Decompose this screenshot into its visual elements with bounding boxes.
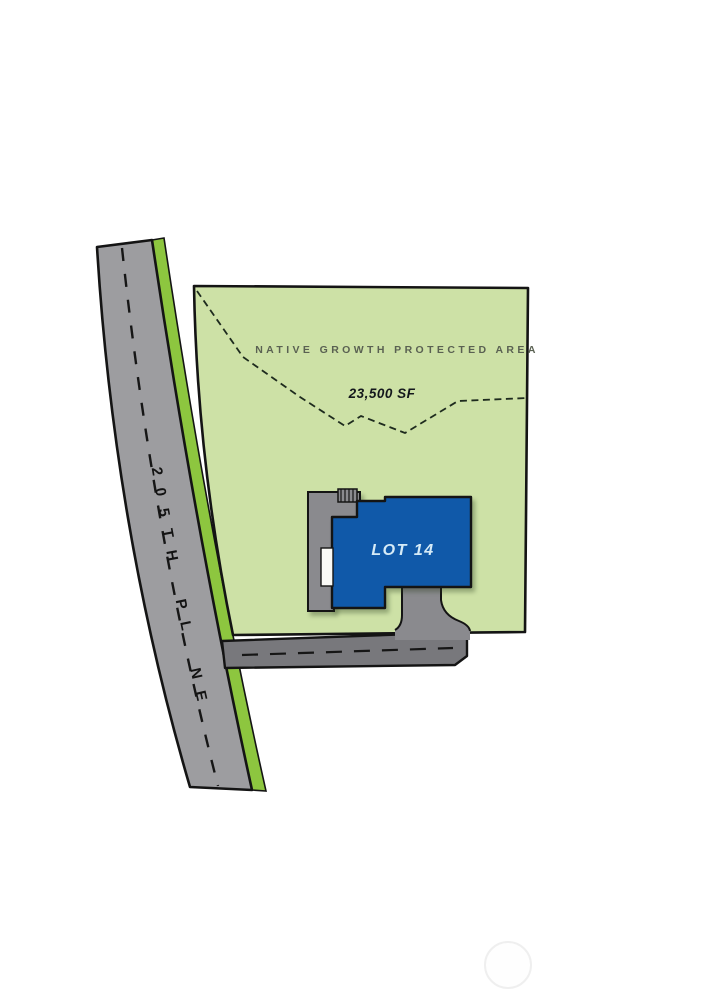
site-plan-drawing: 205TH PL NE NATIVE GROWTH PROTECTED AREA… <box>0 0 707 1000</box>
stairs <box>338 489 357 502</box>
protected-area-label: NATIVE GROWTH PROTECTED AREA <box>255 344 539 356</box>
lot-label: LOT 14 <box>371 542 434 559</box>
watermark-circle <box>485 942 531 988</box>
deck-notch <box>321 548 333 586</box>
site-plan-page: 205TH PL NE NATIVE GROWTH PROTECTED AREA… <box>0 0 707 1000</box>
protected-area-size-label: 23,500 SF <box>348 386 416 401</box>
